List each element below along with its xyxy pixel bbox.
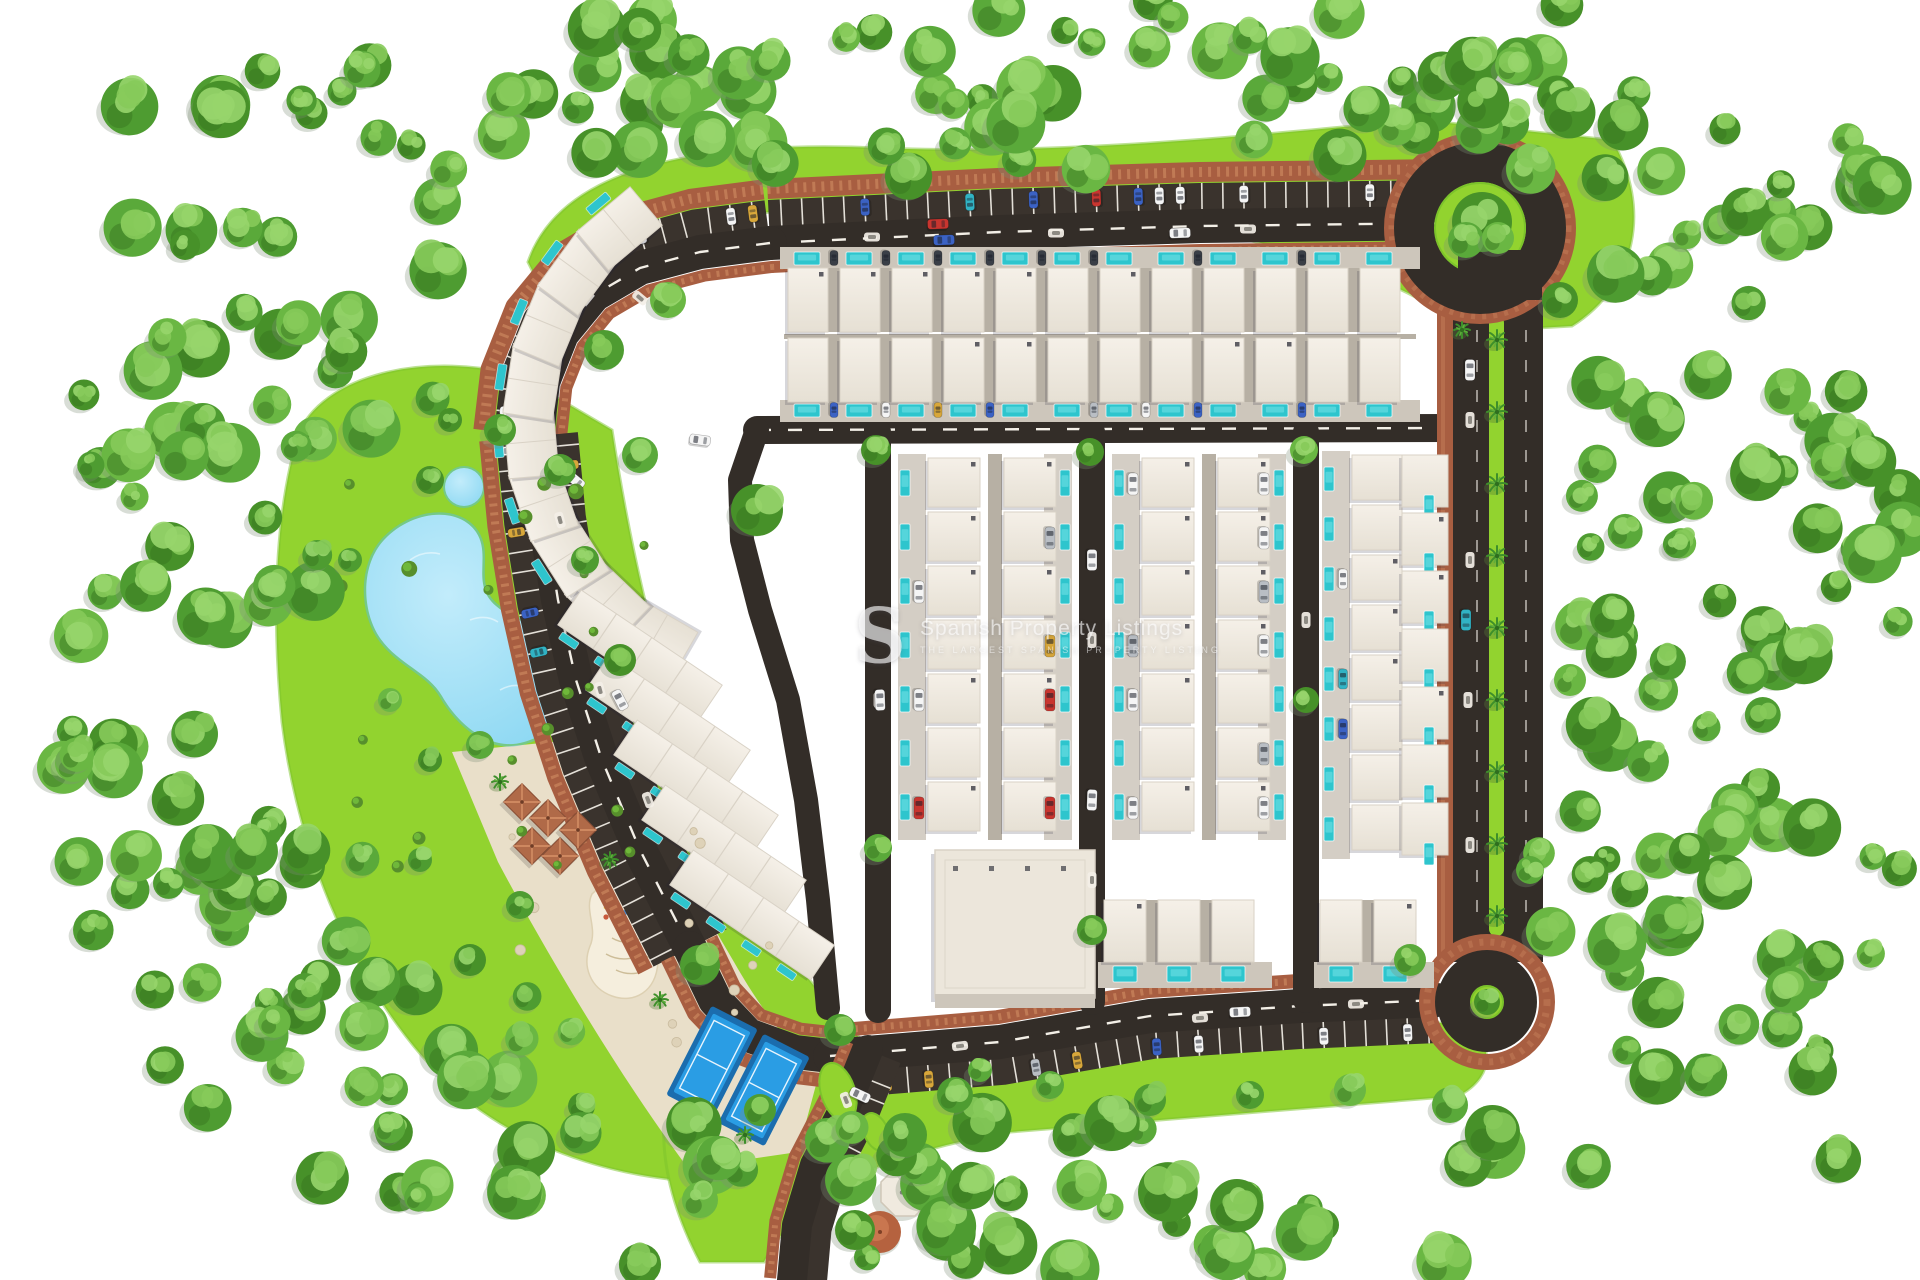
rock <box>695 838 705 848</box>
car <box>1085 788 1098 810</box>
car <box>1459 609 1471 631</box>
road-marking-glyph <box>1466 412 1475 428</box>
bush <box>392 860 404 872</box>
car <box>1317 1027 1329 1045</box>
rock <box>766 942 773 949</box>
bush <box>568 484 584 500</box>
car <box>1043 796 1055 819</box>
car <box>1126 472 1138 495</box>
rock <box>668 1020 677 1029</box>
road-marking-glyph <box>1192 1013 1209 1023</box>
rock <box>690 828 697 835</box>
car <box>984 402 994 418</box>
car <box>1239 186 1250 204</box>
rock <box>515 945 525 955</box>
road-marking-glyph <box>1240 225 1256 234</box>
car <box>880 402 890 418</box>
rock <box>731 1009 737 1015</box>
car <box>860 198 872 217</box>
south-villa-row <box>1098 900 1272 988</box>
rock <box>672 1037 682 1047</box>
car <box>1088 250 1098 266</box>
bush <box>401 561 417 577</box>
car <box>1029 191 1041 209</box>
road-marking-glyph <box>1088 872 1097 888</box>
bush <box>585 683 594 692</box>
car <box>965 193 977 212</box>
car <box>1257 580 1269 603</box>
bush <box>483 585 493 595</box>
bush <box>542 723 554 735</box>
rock <box>509 834 515 840</box>
bush <box>344 479 355 490</box>
road-marking-glyph <box>864 233 880 242</box>
car <box>1192 1034 1204 1053</box>
bush <box>351 796 362 807</box>
bush <box>611 805 623 817</box>
car <box>1126 634 1138 657</box>
car <box>1150 1037 1162 1056</box>
east-villa-columns <box>1322 451 1448 865</box>
car <box>1043 634 1055 657</box>
road-marking-glyph <box>1302 612 1311 628</box>
road-marking-glyph <box>1088 632 1097 648</box>
bush <box>358 735 368 745</box>
car <box>1126 796 1138 819</box>
car <box>873 688 886 710</box>
car <box>1401 1023 1413 1041</box>
road-marking-glyph <box>1464 692 1473 708</box>
car <box>1085 549 1097 571</box>
car <box>1463 359 1475 381</box>
car <box>1043 688 1055 711</box>
car <box>1257 796 1269 819</box>
bush <box>625 847 636 858</box>
car <box>1257 634 1269 657</box>
bush <box>412 832 425 845</box>
bush <box>507 755 517 765</box>
car <box>926 219 948 232</box>
car <box>932 402 942 418</box>
bush <box>562 687 574 699</box>
clubhouse <box>931 850 1095 1008</box>
bush <box>589 627 599 637</box>
car <box>828 402 838 418</box>
car <box>828 250 838 266</box>
car <box>1140 402 1150 418</box>
car <box>932 235 954 248</box>
car <box>984 250 994 266</box>
masterplan-render: S Spanish Property Listings THE LARGEST … <box>0 0 1920 1280</box>
car <box>1126 688 1138 711</box>
car <box>1176 187 1188 205</box>
car <box>1257 742 1269 765</box>
bush <box>516 826 527 837</box>
car <box>1134 188 1146 206</box>
car <box>912 688 924 711</box>
road-marking-glyph <box>1466 837 1475 853</box>
car <box>1337 718 1348 739</box>
top-villa-rows <box>780 247 1420 422</box>
car <box>1337 668 1348 689</box>
car <box>1155 187 1167 205</box>
road-marking-glyph <box>1466 552 1475 568</box>
car <box>1337 568 1348 589</box>
car <box>1192 250 1202 266</box>
rock <box>729 985 739 995</box>
car <box>1296 402 1306 418</box>
car <box>1088 402 1098 418</box>
car <box>1168 228 1190 241</box>
rock <box>685 919 693 927</box>
car <box>1365 184 1376 202</box>
car <box>1228 1006 1251 1019</box>
car <box>880 250 890 266</box>
car <box>932 250 942 266</box>
car <box>1036 250 1046 266</box>
road-marking-glyph <box>1348 999 1364 1009</box>
car <box>912 796 924 819</box>
car <box>1296 250 1306 266</box>
car <box>1257 472 1269 495</box>
site-plan-canvas <box>0 0 1920 1280</box>
car <box>1043 526 1055 549</box>
bush <box>518 510 532 524</box>
car <box>1257 526 1269 549</box>
road-marking-glyph <box>1048 229 1064 238</box>
car <box>922 1069 934 1088</box>
car <box>1192 402 1202 418</box>
car <box>912 580 924 603</box>
rock <box>749 961 757 969</box>
bush <box>639 541 648 550</box>
small-pond <box>445 468 483 506</box>
bush <box>553 861 562 870</box>
